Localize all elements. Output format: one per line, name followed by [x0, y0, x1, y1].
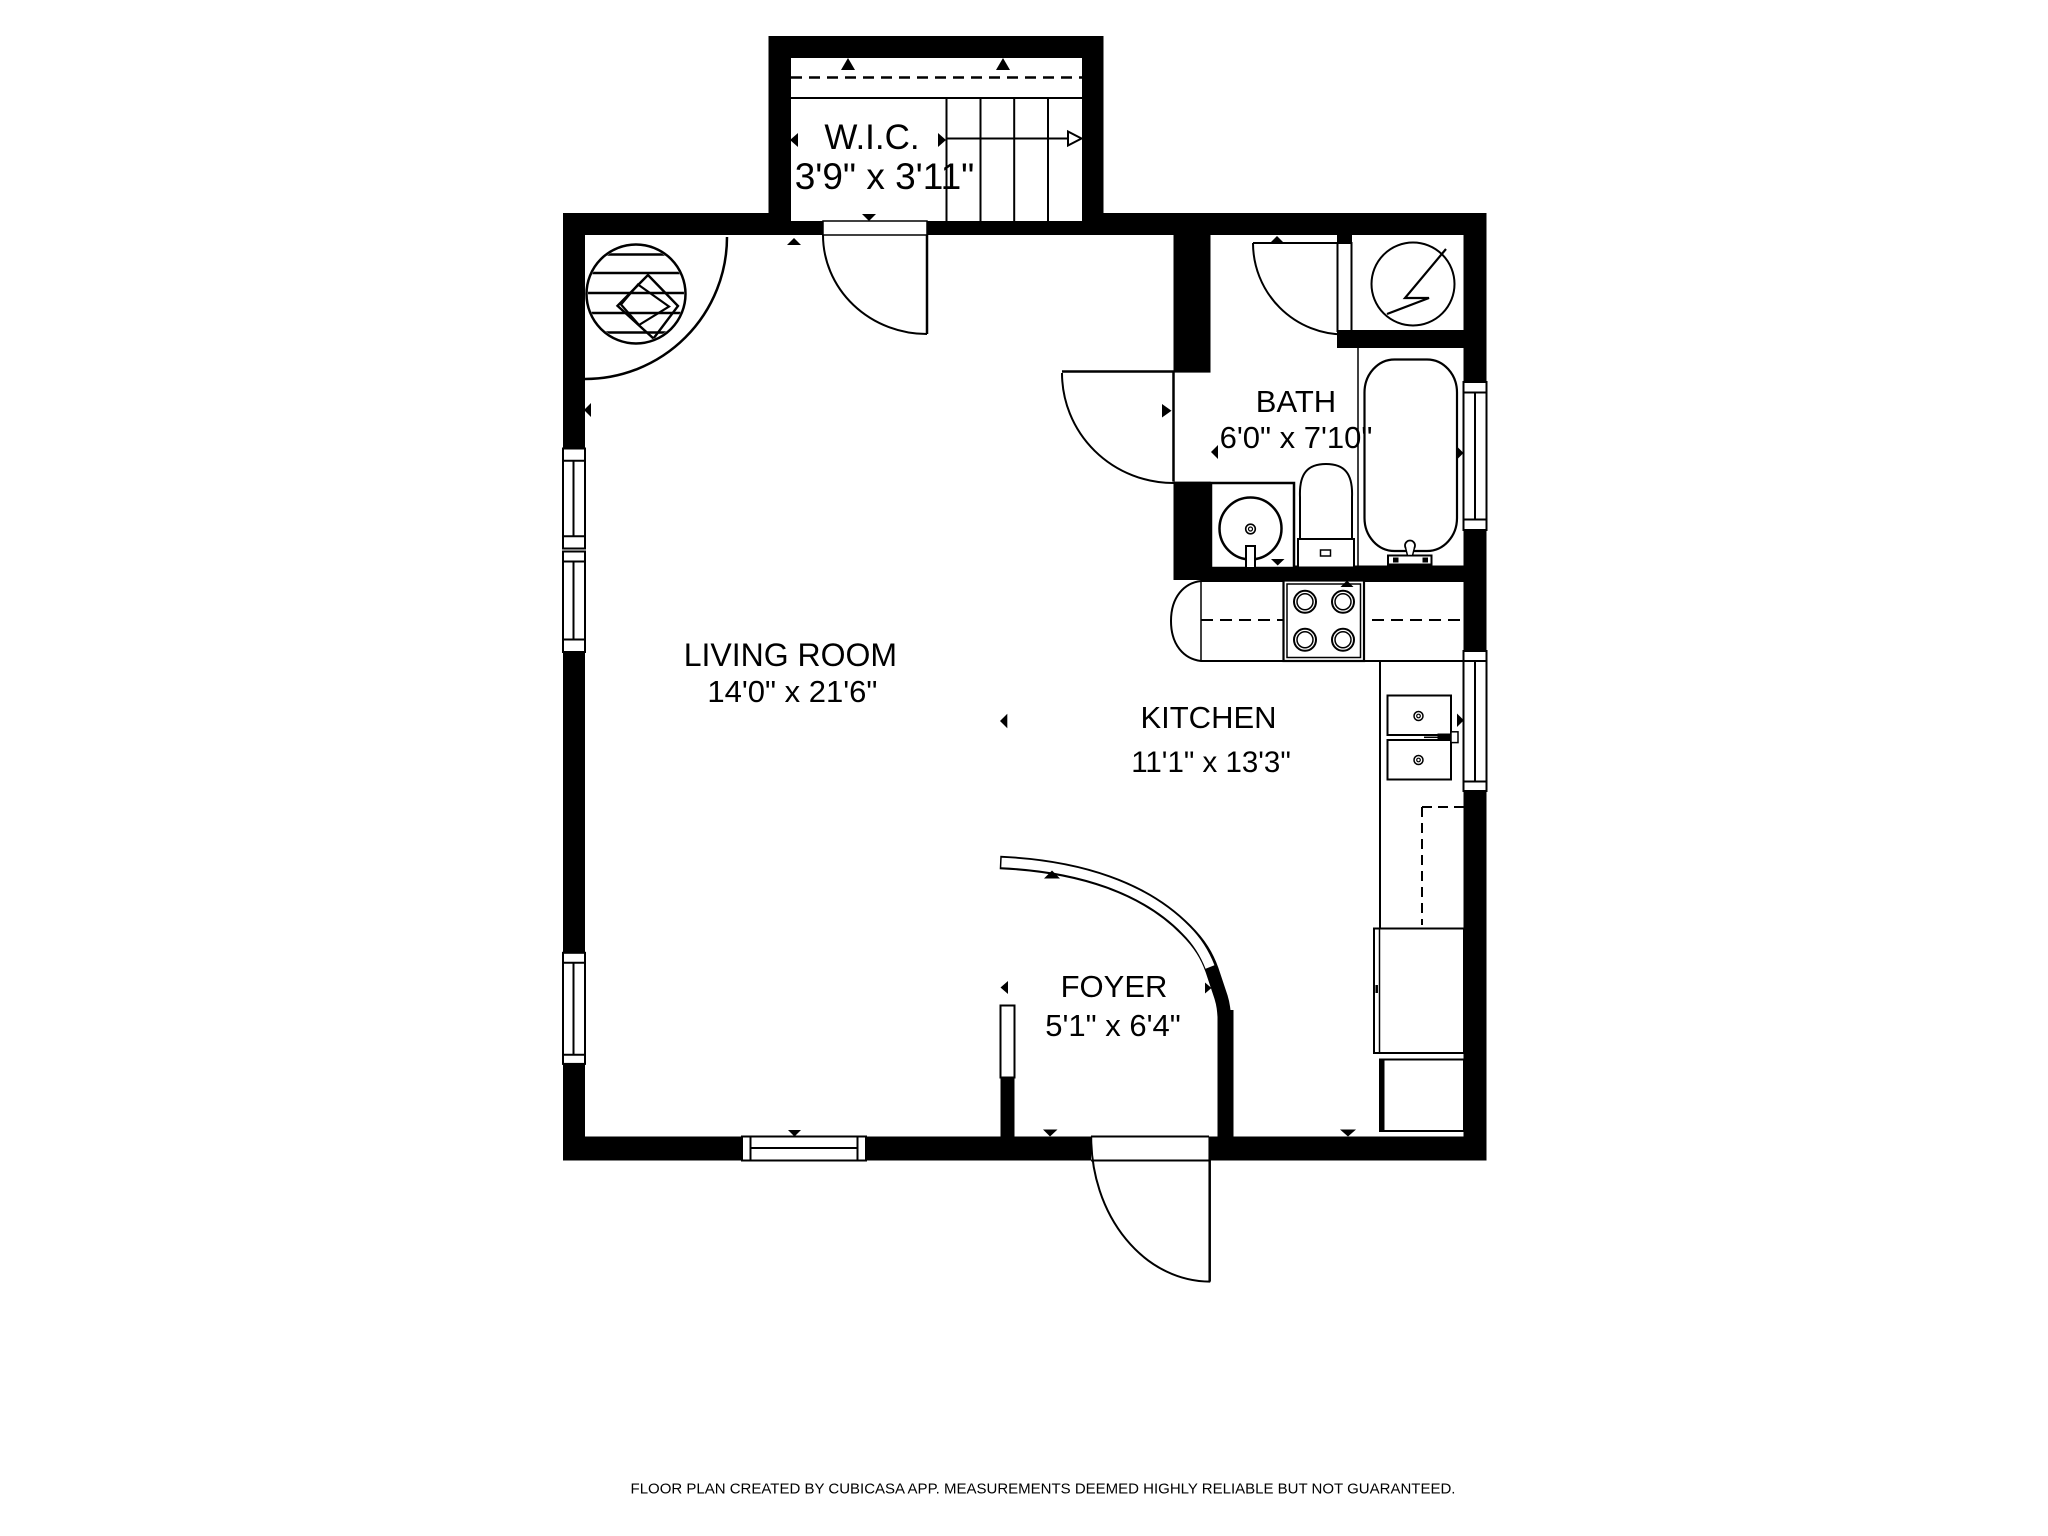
- svg-text:6'0" x 7'10": 6'0" x 7'10": [1220, 420, 1373, 455]
- svg-text:11'1" x 13'3": 11'1" x 13'3": [1131, 746, 1291, 779]
- svg-text:14'0" x 21'6": 14'0" x 21'6": [707, 674, 877, 709]
- svg-text:LIVING ROOM: LIVING ROOM: [684, 637, 897, 673]
- svg-text:FOYER: FOYER: [1061, 969, 1168, 1004]
- svg-text:3'9" x 3'11": 3'9" x 3'11": [795, 156, 975, 197]
- svg-text:FLOOR PLAN CREATED BY CUBICASA: FLOOR PLAN CREATED BY CUBICASA APP. MEAS…: [631, 1481, 1456, 1498]
- svg-text:KITCHEN: KITCHEN: [1140, 700, 1276, 735]
- svg-text:W.I.C.: W.I.C.: [824, 118, 919, 157]
- svg-text:5'1" x 6'4": 5'1" x 6'4": [1045, 1008, 1181, 1043]
- svg-text:BATH: BATH: [1256, 384, 1336, 419]
